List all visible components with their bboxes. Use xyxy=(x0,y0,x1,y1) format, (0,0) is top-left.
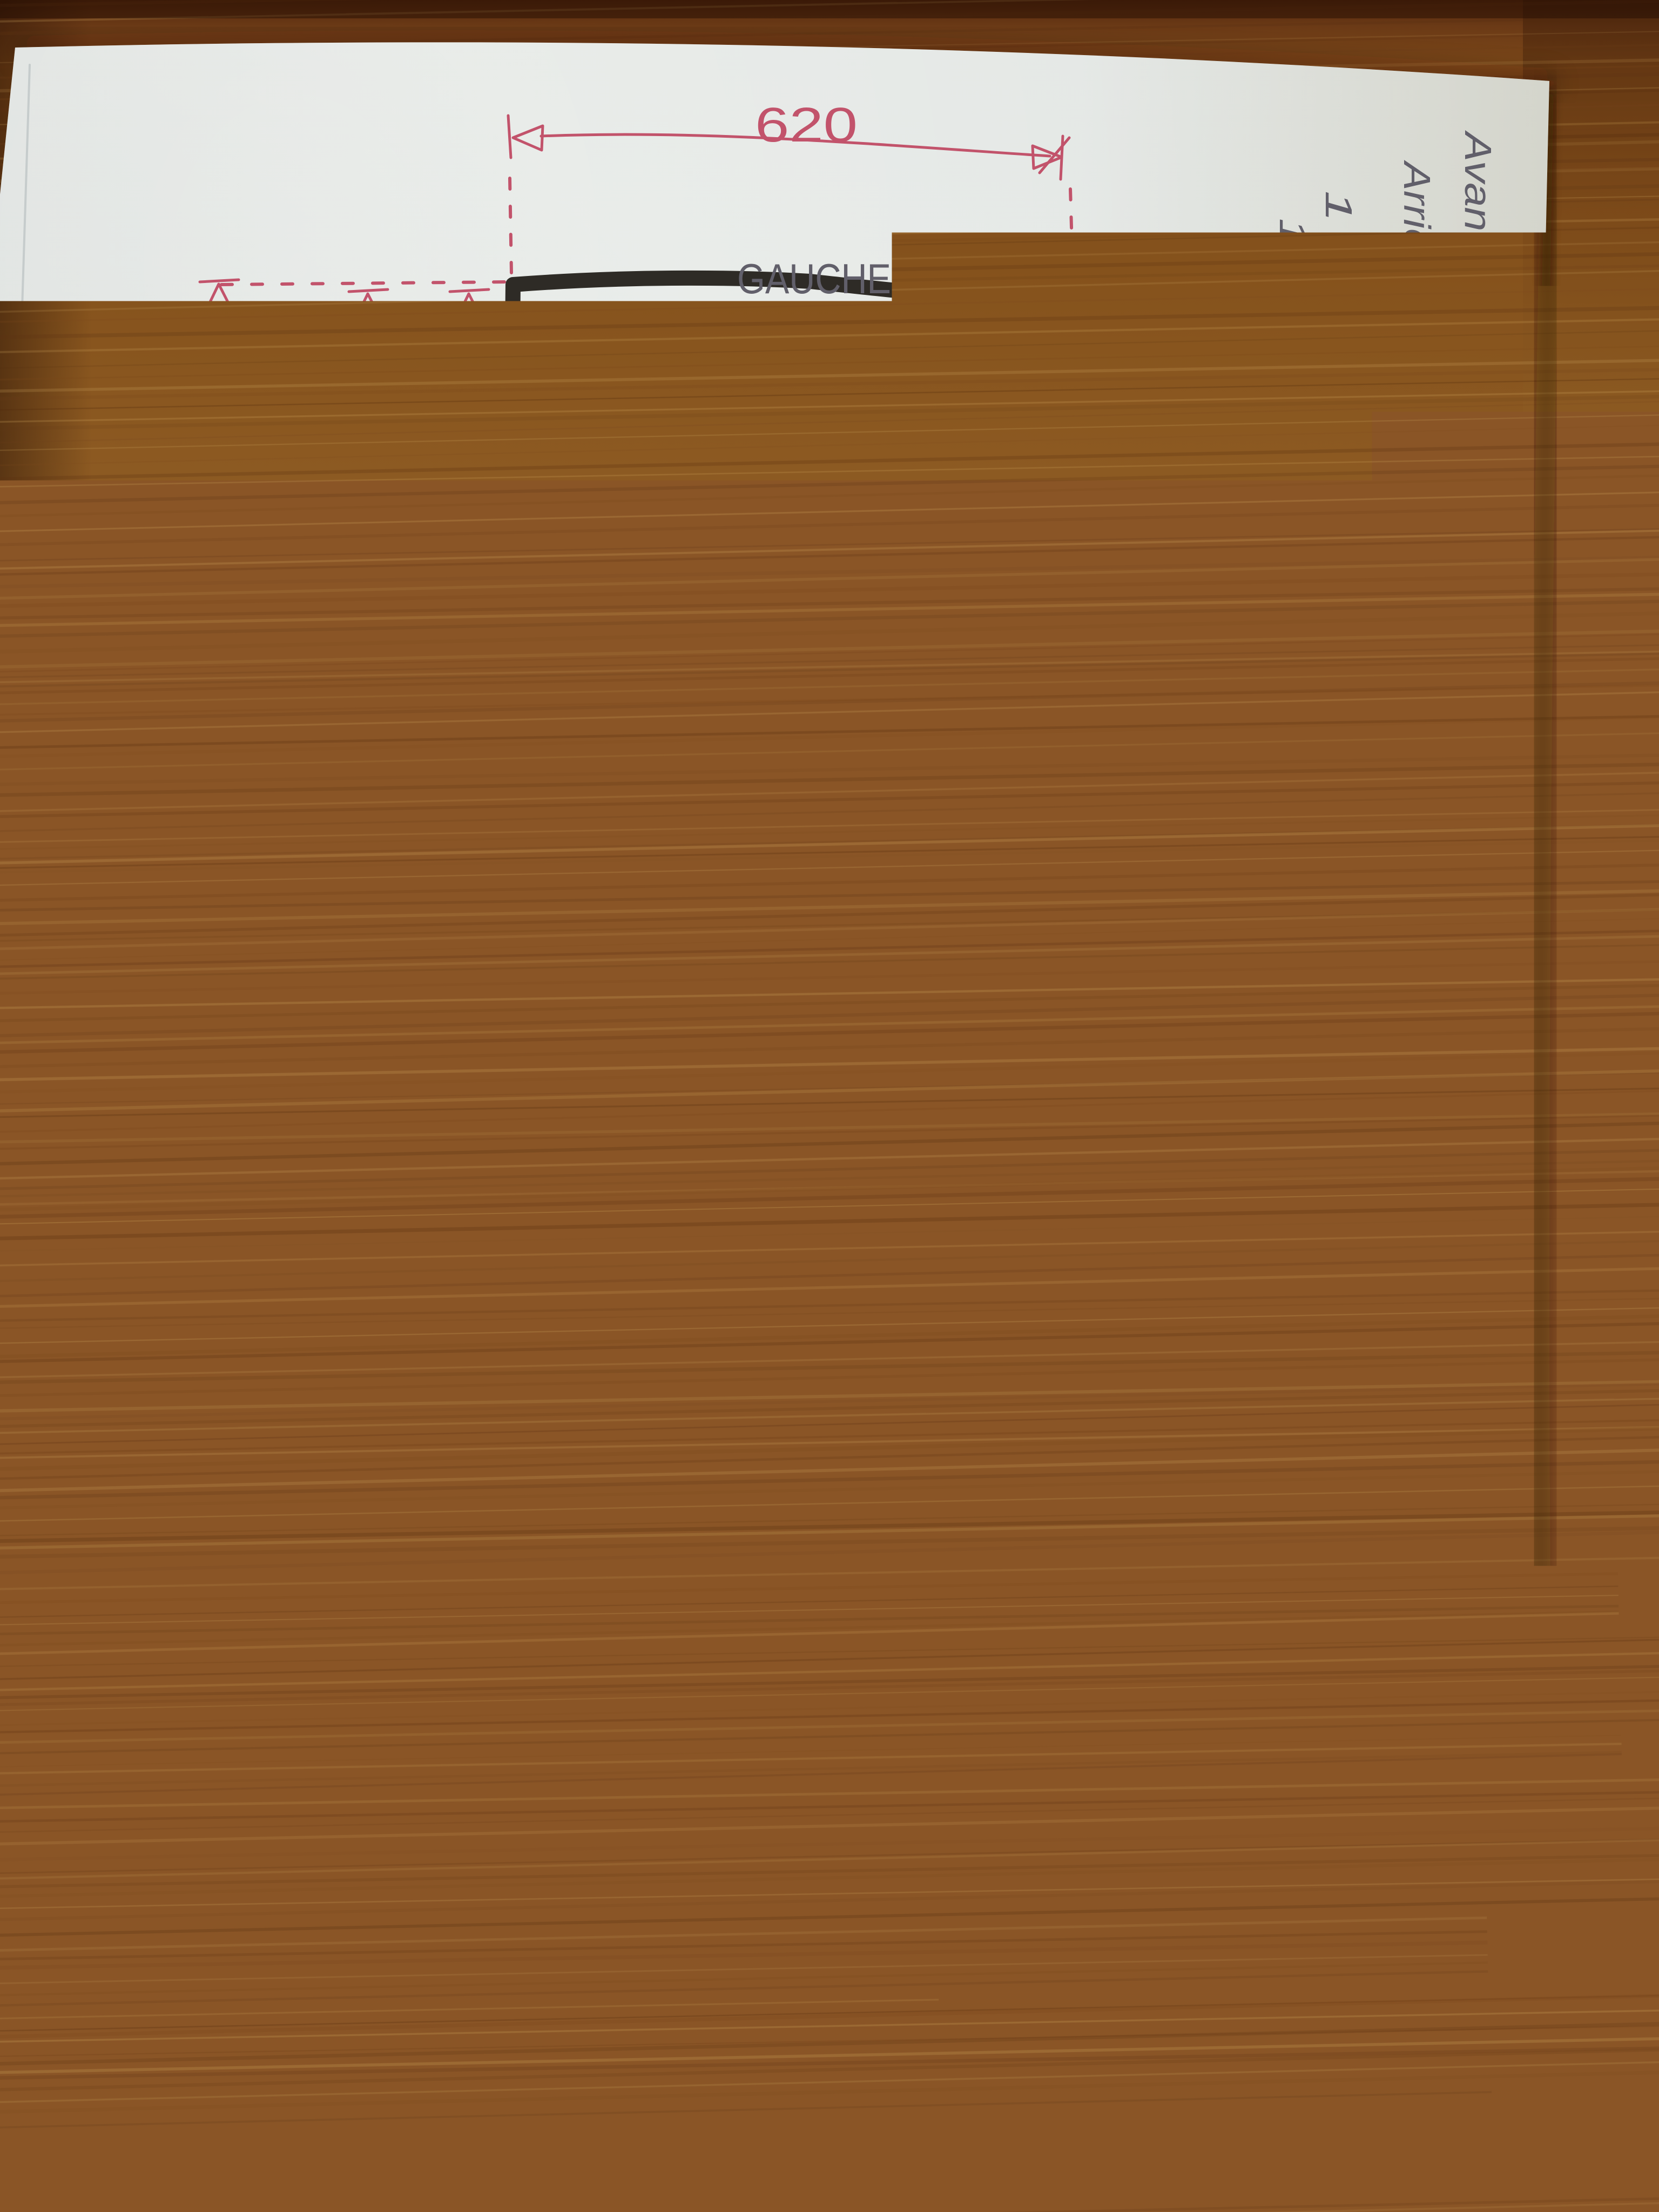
svg-text:2427: 2427 xyxy=(1152,996,1192,1123)
svg-text:1 Evier HI 50x40IF Vidange man: 1 Evier HI 50x40IF Vidange man. xyxy=(1272,218,1314,939)
svg-text:bord stand.: bord stand. xyxy=(1261,984,1303,1228)
svg-text:Découpe: Découpe xyxy=(834,629,879,867)
svg-text:500: 500 xyxy=(427,1627,469,1735)
svg-text:1 mitigeur Line MN1021 Chromé-: 1 mitigeur Line MN1021 Chromé- xyxy=(1218,241,1260,933)
svg-text:Arrière et Droite = droit bru: Arrière et Droite = droit brut xyxy=(1396,159,1438,682)
svg-text:DROITE: DROITE xyxy=(702,1939,835,1978)
svg-text:Evier.: Evier. xyxy=(838,1585,881,1712)
svg-text:560: 560 xyxy=(432,721,474,802)
svg-text:1 Découpe 480 x 560: 1 Découpe 480 x 560 xyxy=(1318,191,1360,723)
svg-text:70: 70 xyxy=(562,487,611,535)
svg-text:70: 70 xyxy=(558,1425,610,1471)
svg-text:620: 620 xyxy=(755,98,858,152)
svg-text:Avant et Gauche = tombé brut 3: Avant et Gauche = tombé brut 38mm xyxy=(1457,130,1499,851)
svg-text:470: 470 xyxy=(424,401,466,484)
svg-text:ARRIÈRE: ARRIÈRE xyxy=(1077,1067,1113,1208)
svg-text:Plan Allègre...: Plan Allègre... xyxy=(1392,1765,1431,2032)
svg-text:GAUCHE: GAUCHE xyxy=(737,255,891,302)
svg-text:480: 480 xyxy=(783,467,864,515)
svg-text:VU DE DESSUS: VU DE DESSUS xyxy=(1452,1740,1495,2053)
svg-text:2752: 2752 xyxy=(206,1156,257,1315)
svg-text:AVANT: AVANT xyxy=(488,1068,521,1171)
svg-text:2177: 2177 xyxy=(340,826,391,988)
svg-text:Robinet: Robinet xyxy=(1180,1847,1221,2031)
svg-text:505: 505 xyxy=(758,1266,874,1326)
svg-text:400: 400 xyxy=(783,1424,864,1461)
